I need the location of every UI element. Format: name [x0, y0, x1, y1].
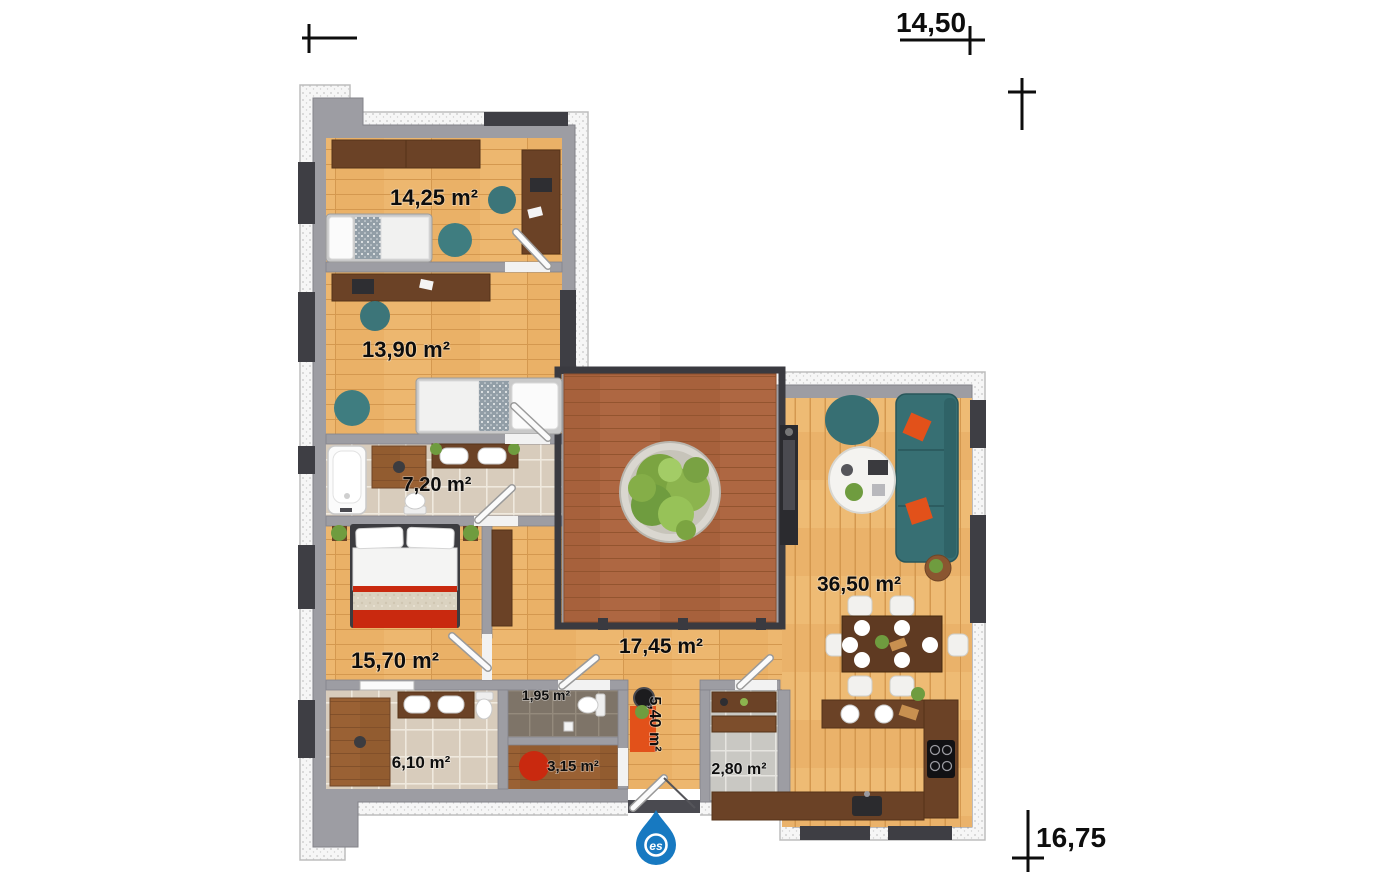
room-area-label: 7,20 m² [403, 474, 472, 496]
floor-plan-drawing: 14,25 m² 13,90 m² 7,20 m² 15,70 m² 17,45… [0, 0, 1400, 875]
window-icon [970, 515, 986, 623]
window-icon [298, 545, 315, 609]
patio-post [598, 618, 608, 630]
window-icon [298, 292, 315, 362]
window-icon [800, 826, 870, 840]
desk-icon [522, 150, 560, 254]
red-pouf-icon [519, 751, 549, 781]
logo-initials: es [649, 839, 663, 853]
patio-post [756, 618, 766, 630]
plant-icon [463, 525, 479, 541]
window-icon [298, 700, 315, 758]
dimension-label-width: 14,50 [896, 7, 966, 38]
door-leaf [360, 681, 414, 690]
bed-red-runner [353, 586, 457, 592]
desk-chair-icon [488, 186, 516, 214]
window-icon [298, 446, 315, 474]
toilet-icon [578, 697, 598, 713]
dimension-label-height: 16,75 [1036, 822, 1106, 853]
single-bed-icon [326, 214, 432, 262]
pouf-icon [438, 223, 472, 257]
desk-icon [332, 274, 490, 301]
bed-red-blanket [353, 610, 457, 628]
room-area-label: 6,10 m² [392, 753, 451, 772]
double-bed-icon [350, 524, 460, 628]
paper-holder-icon [564, 722, 573, 731]
plant-icon [331, 525, 347, 541]
pouf-icon [334, 390, 370, 426]
kitchen-counter-icon [712, 792, 924, 820]
shower-icon [330, 698, 390, 786]
toilet-icon [404, 493, 426, 514]
room-area-label: 36,50 m² [817, 573, 901, 596]
stove-icon [927, 740, 955, 778]
desk-chair-icon [360, 301, 390, 331]
window-icon [560, 290, 576, 374]
double-sink-icon [430, 443, 520, 468]
room-area-label: 17,45 m² [619, 635, 703, 658]
patio-post [678, 618, 688, 630]
floor-plan-canvas: 14,25 m² 13,90 m² 7,20 m² 15,70 m² 17,45… [0, 0, 1400, 875]
side-table-icon [925, 555, 951, 581]
window-icon [484, 112, 568, 126]
room-area-label: 3,15 m² [547, 758, 599, 775]
window-icon [888, 826, 952, 840]
hallway-closet-icon [492, 530, 512, 626]
window-icon [970, 400, 986, 448]
pantry-shelves [712, 692, 776, 732]
armchair-pouf-icon [825, 395, 879, 445]
room-area-label: 13,90 m² [362, 337, 450, 362]
room-area-label: 1,95 m² [522, 687, 571, 703]
plant-icon [911, 687, 925, 701]
courtyard-patio [558, 370, 798, 630]
room-area-label: 2,80 m² [711, 761, 766, 778]
coffee-table-icon [829, 447, 895, 513]
tree-icon [620, 442, 720, 542]
room-area-label: 14,25 m² [390, 185, 478, 210]
bathtub-icon [328, 446, 366, 514]
room-area-label: 5,40 m² [646, 696, 663, 751]
logo-watermark: es [636, 810, 676, 865]
room-area-label: 15,70 m² [351, 648, 439, 673]
fireplace-icon [780, 425, 798, 545]
window-icon [298, 162, 315, 224]
double-sink-icon [398, 692, 474, 718]
toilet-icon [476, 692, 493, 719]
